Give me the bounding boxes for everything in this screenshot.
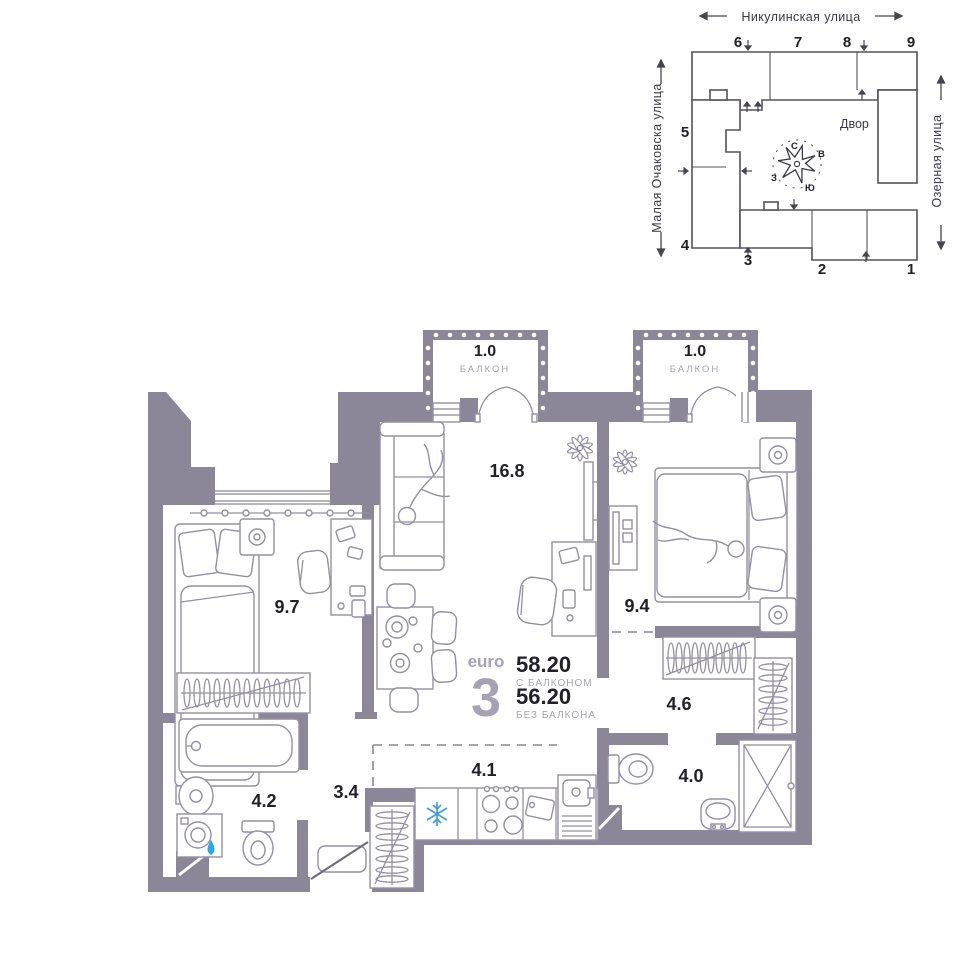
compass-east: В [818, 149, 825, 160]
curtain-icon [190, 510, 369, 516]
building-number-2: 2 [818, 261, 826, 278]
street-right-label: Озерная улица [930, 115, 944, 208]
compass-south: Ю [805, 183, 815, 194]
closet-rack-top [663, 637, 755, 679]
plant-living [567, 435, 594, 461]
compass-west: З [771, 173, 777, 184]
label-kitchen: 4.1 [471, 760, 496, 780]
entry-door [311, 842, 368, 879]
area-with-balcony: 58.20 [516, 652, 571, 677]
dining-table [377, 584, 457, 712]
balcony-2-area: 1.0 [684, 343, 706, 360]
plant-bedroom2 [613, 450, 638, 474]
tv-living [584, 462, 597, 540]
window-bedroom2-left [643, 403, 670, 422]
label-bathroom: 4.2 [251, 791, 276, 811]
desk-living [552, 542, 596, 636]
label-bedroom-1: 9.7 [274, 597, 299, 617]
label-living-room: 16.8 [489, 461, 524, 481]
floor-plan: 1.0 БАЛКОН 1.0 БАЛКОН [148, 330, 812, 892]
type-number: 3 [471, 668, 501, 728]
chair-living [516, 576, 558, 627]
window-bedroom1-recess [215, 491, 333, 504]
wardrobe-bedroom1 [177, 673, 310, 713]
street-left-label: Малая Очаковска улица [650, 83, 664, 232]
window-bedroom2-top [736, 392, 756, 422]
window-living [433, 403, 460, 422]
washing-machine [177, 814, 222, 857]
courtyard-label: Двор [840, 117, 869, 131]
chair-bedroom1 [297, 549, 332, 594]
balcony-1-label: БАЛКОН [460, 364, 510, 375]
dresser-tv-bedroom2 [609, 506, 637, 570]
shower-cabin [739, 740, 796, 832]
compass-north: С [791, 141, 798, 152]
label-wardrobe: 4.6 [666, 694, 691, 714]
sofa [380, 422, 444, 570]
building-number-5: 5 [681, 124, 689, 141]
building-number-6: 6 [734, 34, 742, 51]
compass-icon: С В Ю З [771, 140, 825, 194]
site-plan: С В Ю З Никулинская улица Малая Очаковск… [650, 10, 945, 278]
wardrobe-hallway [370, 806, 414, 888]
bed-double [655, 464, 797, 606]
building-number-7: 7 [794, 34, 802, 51]
sink-shower-room [701, 799, 735, 830]
toilet-bathroom [242, 821, 274, 865]
building-number-4: 4 [681, 237, 690, 254]
bathtub [179, 719, 299, 772]
balcony-1-area: 1.0 [474, 343, 496, 360]
area-without-balcony: 56.20 [516, 684, 571, 709]
building-number-8: 8 [843, 34, 851, 51]
nightstand-bedroom2-top [760, 438, 796, 472]
nightstand-bedroom2-bottom [760, 598, 796, 632]
building-outline [692, 52, 917, 260]
street-top-label: Никулинская улица [741, 10, 860, 24]
apartment-summary: euro 3 58.20 С БАЛКОНОМ 56.20 БЕЗ БАЛКОН… [468, 652, 596, 728]
building-number-1: 1 [907, 261, 915, 278]
building-number-3: 3 [744, 252, 752, 269]
desk-bedroom1 [331, 519, 372, 617]
kitchen-sink [558, 775, 596, 840]
building-number-9: 9 [907, 34, 915, 51]
label-shower-room: 4.0 [678, 766, 703, 786]
nightstand-bedroom1 [240, 519, 274, 555]
label-bedroom-2: 9.4 [624, 596, 649, 616]
closet-rack-right [754, 658, 792, 734]
toilet-shower-room [608, 754, 653, 784]
label-hallway: 3.4 [333, 782, 358, 802]
floorplan-canvas: С В Ю З Никулинская улица Малая Очаковск… [0, 0, 960, 960]
balcony-2-label: БАЛКОН [670, 364, 720, 375]
area-without-balcony-label: БЕЗ БАЛКОНА [516, 710, 596, 721]
